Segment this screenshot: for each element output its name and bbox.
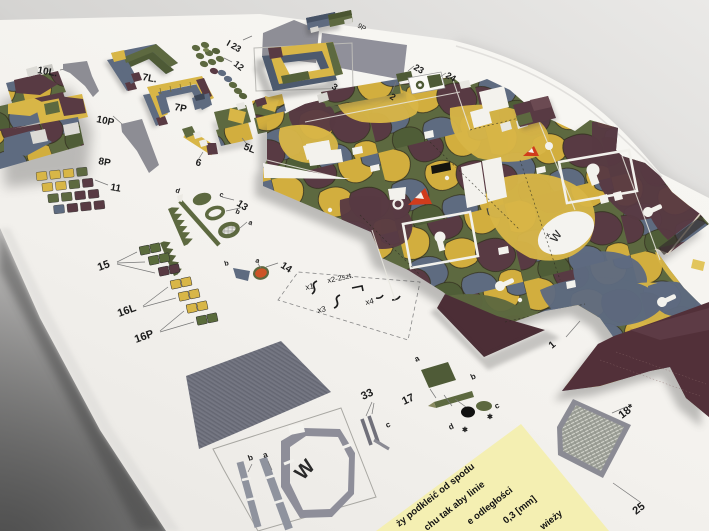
svg-text:✱: ✱ [487, 413, 493, 421]
svg-text:7P: 7P [173, 102, 187, 115]
svg-text:8P: 8P [97, 156, 111, 169]
svg-text:✱: ✱ [462, 426, 468, 434]
